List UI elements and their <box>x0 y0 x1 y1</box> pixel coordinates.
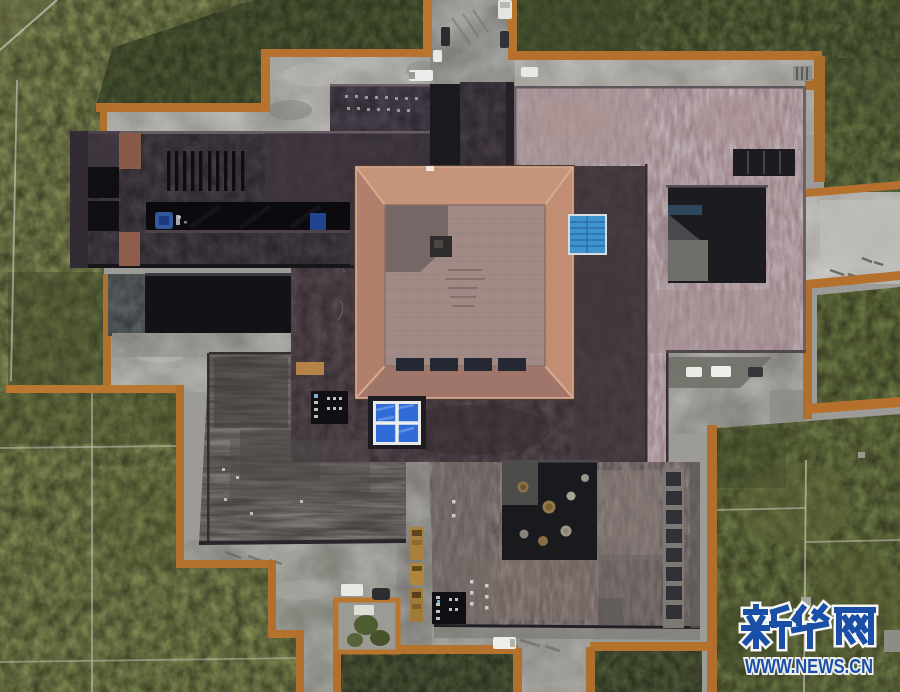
svg-text:WWW.NEWS.CN: WWW.NEWS.CN <box>745 656 873 678</box>
